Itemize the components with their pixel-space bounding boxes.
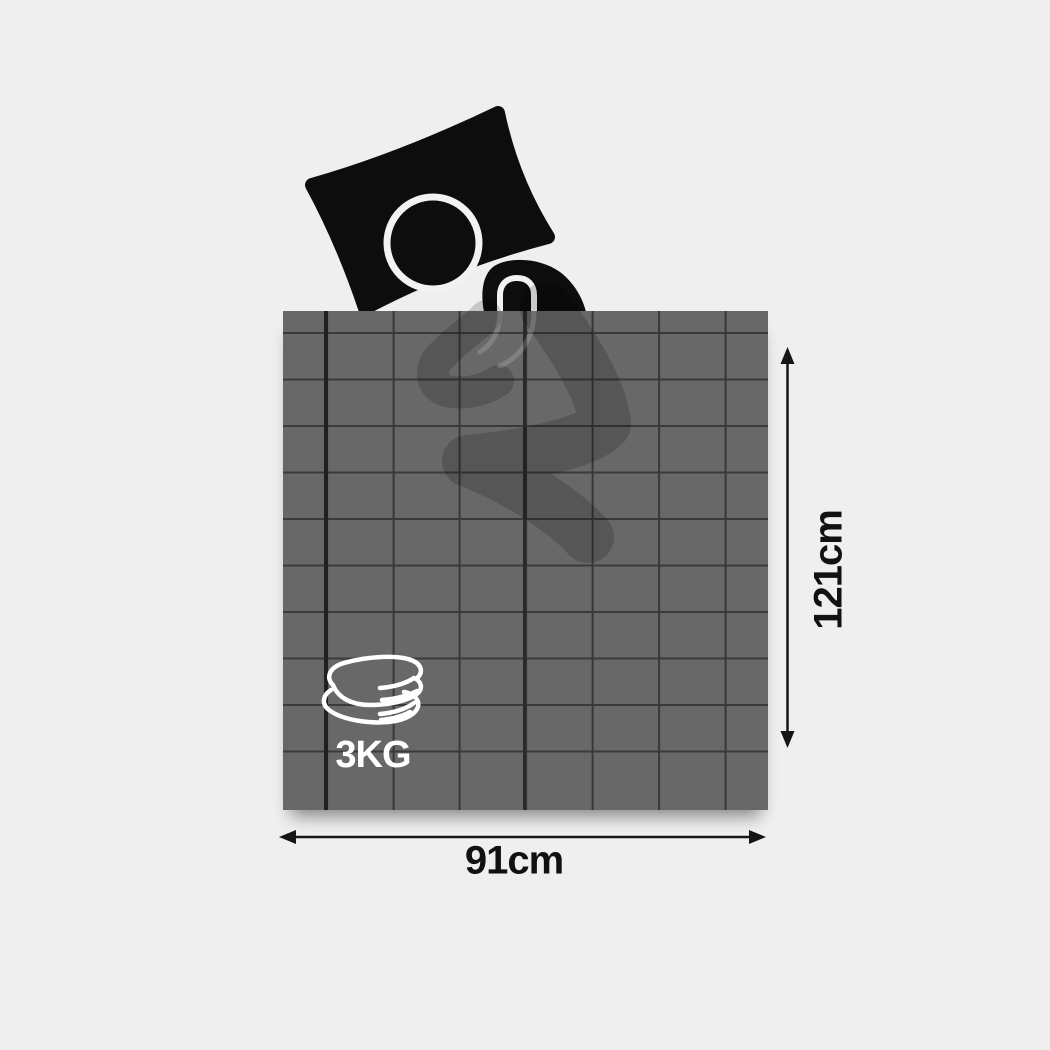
- vertical-dimension-arrow: [781, 347, 795, 748]
- dimension-arrows: [0, 0, 1050, 1050]
- weight-badge: 3KG: [306, 648, 440, 777]
- weight-label: 3KG: [306, 734, 440, 777]
- weighted-blanket-dimension-diagram: 121cm 91cm 3KG: [0, 0, 1050, 1050]
- height-dimension-label: 121cm: [807, 510, 852, 630]
- width-dimension-label: 91cm: [465, 839, 563, 884]
- folded-blanket-icon: [306, 648, 440, 732]
